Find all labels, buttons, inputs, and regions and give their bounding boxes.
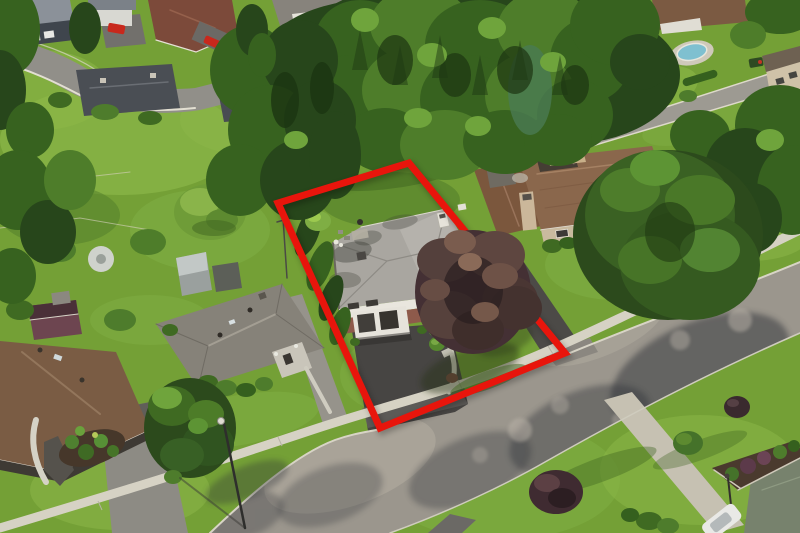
lamp-head [218,418,225,425]
dark-shed [212,262,242,292]
large-conifer [573,150,763,320]
garage-door-left [357,313,376,333]
front-conifer [144,378,236,478]
aerial-photo-canvas [0,0,800,533]
purple-shed [28,300,82,340]
gray-shed [176,252,212,296]
gazebo-dome [88,246,114,272]
small-shed-2 [51,291,70,305]
garage-door-right [379,310,399,330]
chimney [356,251,366,260]
aerial-photo [0,0,800,533]
dark-roof-house-1 [76,64,180,116]
